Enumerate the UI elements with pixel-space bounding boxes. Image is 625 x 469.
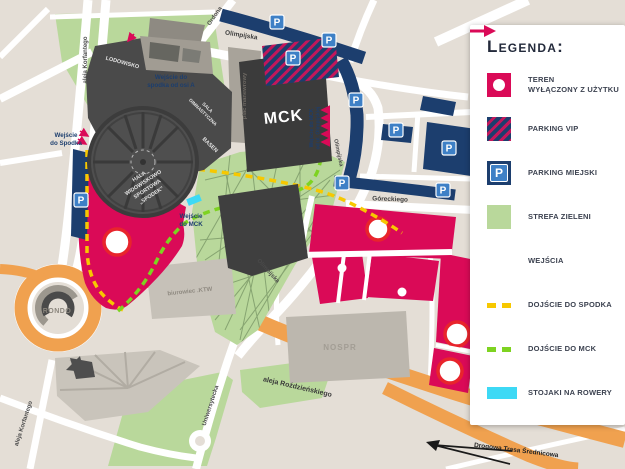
- parking-p-icon: P: [322, 33, 336, 47]
- parking-p-icon: P: [389, 123, 403, 137]
- svg-text:P: P: [326, 36, 333, 47]
- parking-p-icon: P: [487, 161, 511, 185]
- legend-item-excluded-area: TEREN WYŁĄCZONY Z UŻYTKU: [487, 63, 619, 107]
- svg-text:P: P: [353, 96, 360, 107]
- svg-text:P: P: [393, 126, 400, 137]
- entrance-label-mck-olimpijska: Wejście do MCK od ul. Olimpijskiej: [309, 106, 322, 149]
- bike-rack-swatch: [487, 387, 517, 399]
- legend-item-label: DOJŚCIE DO SPODKA: [528, 300, 612, 310]
- street-label-olimpijska-top: Olimpijska: [224, 29, 258, 41]
- legend-item-label: WEJŚCIA: [528, 256, 564, 266]
- legend-item-label: PARKING MIEJSKI: [528, 168, 597, 178]
- svg-text:od ul. Olimpijskiej: od ul. Olimpijskiej: [316, 106, 322, 149]
- legend-item-bike-racks: STOJAKI NA ROWERY: [487, 371, 619, 415]
- legend-item-entrances: WEJŚCIA: [487, 239, 619, 283]
- svg-text:Wejście do MCK: Wejście do MCK: [309, 108, 315, 147]
- svg-text:Wejście do: Wejście do: [155, 74, 187, 81]
- label-rondo: RONDO: [43, 308, 72, 315]
- legend-item-label: PARKING VIP: [528, 124, 578, 134]
- parking-p-icon: P: [349, 93, 363, 107]
- parking-vip-swatch: [487, 117, 511, 141]
- svg-text:P: P: [274, 18, 281, 29]
- entrance-arrow-icon: [80, 131, 88, 136]
- street-label-korfantego-top: aleja Korfantego: [83, 36, 89, 83]
- green-zone-swatch: [487, 205, 511, 229]
- svg-text:P: P: [78, 196, 85, 207]
- route-spodek-dash-icon: [487, 303, 517, 308]
- legend-item-label: STREFA ZIELENI: [528, 212, 591, 222]
- route-mck-dash-icon: [487, 347, 517, 352]
- svg-text:P: P: [440, 186, 447, 197]
- legend-item-route-spodek: DOJŚCIE DO SPODKA: [487, 283, 619, 327]
- svg-text:P: P: [446, 144, 453, 155]
- building-label-plac-manewrowy: plac manewrowy: [242, 72, 248, 119]
- legend-item-parking-vip: PARKING VIP: [487, 107, 619, 151]
- parking-p-icon: P: [335, 176, 349, 190]
- parking-p-icon: P: [286, 51, 300, 65]
- parking-p-icon: P: [74, 193, 88, 207]
- legend-panel: Legenda: TEREN WYŁĄCZONY Z UŻYTKU PARKIN…: [470, 25, 625, 425]
- map-page: P P P P P P P P P aleja Korfantego aleja…: [0, 0, 625, 469]
- legend-item-label: DOJŚCIE DO MCK: [528, 344, 596, 354]
- legend-title: Legenda:: [487, 37, 619, 57]
- svg-text:Wejście: Wejście: [180, 213, 203, 220]
- svg-text:spodka od osi A: spodka od osi A: [147, 82, 195, 89]
- svg-text:do Spodka: do Spodka: [50, 140, 82, 147]
- legend-item-label: TEREN WYŁĄCZONY Z UŻYTKU: [528, 75, 619, 95]
- svg-text:Wejście: Wejście: [55, 132, 78, 139]
- parking-p-icon: P: [270, 15, 284, 29]
- legend-item-parking-city: P PARKING MIEJSKI: [487, 151, 619, 195]
- legend-item-label: STOJAKI NA ROWERY: [528, 388, 612, 398]
- parking-p-icon: P: [442, 141, 456, 155]
- excluded-area-swatch: [487, 73, 511, 97]
- building-label-nospr: NOSPR: [323, 343, 356, 352]
- legend-item-green-zone: STREFA ZIELENI: [487, 195, 619, 239]
- svg-text:do MCK: do MCK: [179, 221, 203, 228]
- parking-p-icon: P: [436, 183, 450, 197]
- entrance-label-mck: Wejście do MCK: [179, 213, 203, 228]
- svg-text:P: P: [290, 54, 297, 65]
- legend-item-route-mck: DOJŚCIE DO MCK: [487, 327, 619, 371]
- svg-text:P: P: [339, 179, 346, 190]
- street-label-goreckiego: Góreckiego: [372, 195, 408, 203]
- entrance-arrow-icon: [470, 25, 496, 37]
